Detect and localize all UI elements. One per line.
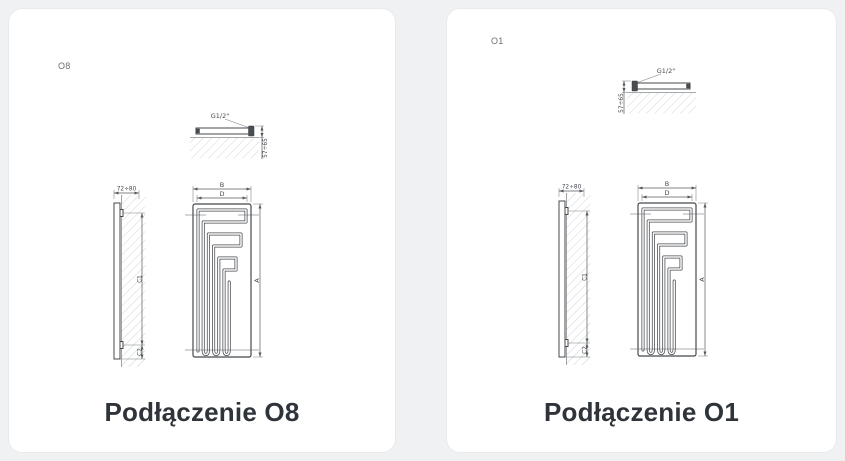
bracket-bottom [565, 340, 568, 347]
side-view: 72÷80 C1 C2 [114, 187, 146, 368]
front-view: B D A [185, 181, 263, 357]
bracket-offset-label: C2 [583, 346, 589, 354]
valve-fitting [249, 126, 255, 136]
bracket-span-label: C1 [138, 275, 144, 283]
radiator-outline [193, 204, 251, 357]
front-view: B D A [630, 180, 708, 356]
end-cap [687, 84, 690, 88]
panel-caption: Podłączenie O1 [447, 397, 836, 428]
technical-drawing-o1: G1/2" 57÷65 72÷80 C1 C2 [447, 9, 838, 394]
top-view: G1/2" 57÷65 [619, 67, 696, 114]
inner-width-label: D [664, 189, 669, 197]
bracket-top [120, 210, 123, 217]
height-label: A [253, 278, 261, 283]
leader-line [638, 74, 662, 83]
end-cap [197, 129, 200, 133]
leader-line [225, 119, 249, 128]
thread-label: G1/2" [657, 67, 676, 75]
panel-caption: Podłączenie O8 [9, 397, 395, 428]
panel-o1: O1 G1/2" 57÷65 72÷80 [446, 8, 837, 453]
radiator-side-profile [114, 203, 120, 359]
bracket-span-label: C1 [583, 273, 589, 281]
outer-width-label: B [665, 180, 669, 188]
panel-o8: O8 G1/2" 57÷65 72÷80 [8, 8, 396, 453]
extension-lines [622, 81, 631, 93]
top-view: G1/2" 57÷65 [190, 112, 269, 159]
bracket-offset-label: C2 [138, 348, 144, 356]
radiator-side-profile [559, 201, 565, 357]
depth-label: 72÷80 [562, 185, 582, 191]
wall-distance-label: 57÷65 [619, 93, 625, 113]
valve-fitting [632, 81, 638, 91]
side-view: 72÷80 C1 C2 [559, 185, 591, 366]
bracket-top [565, 208, 568, 215]
technical-drawing-o8: G1/2" 57÷65 72÷80 C1 C2 [9, 9, 397, 394]
wall-distance-label: 57÷65 [263, 138, 269, 158]
bracket-bottom [120, 342, 123, 349]
wall-hatch [190, 138, 259, 159]
extension-lines [255, 126, 264, 138]
radiator-top-profile [196, 128, 252, 134]
wall-hatch [627, 93, 696, 114]
thread-label: G1/2" [211, 112, 230, 120]
height-label: A [698, 277, 706, 282]
depth-label: 72÷80 [117, 187, 137, 193]
outer-width-label: B [220, 181, 224, 189]
inner-width-label: D [219, 190, 224, 198]
radiator-top-profile [634, 83, 690, 89]
